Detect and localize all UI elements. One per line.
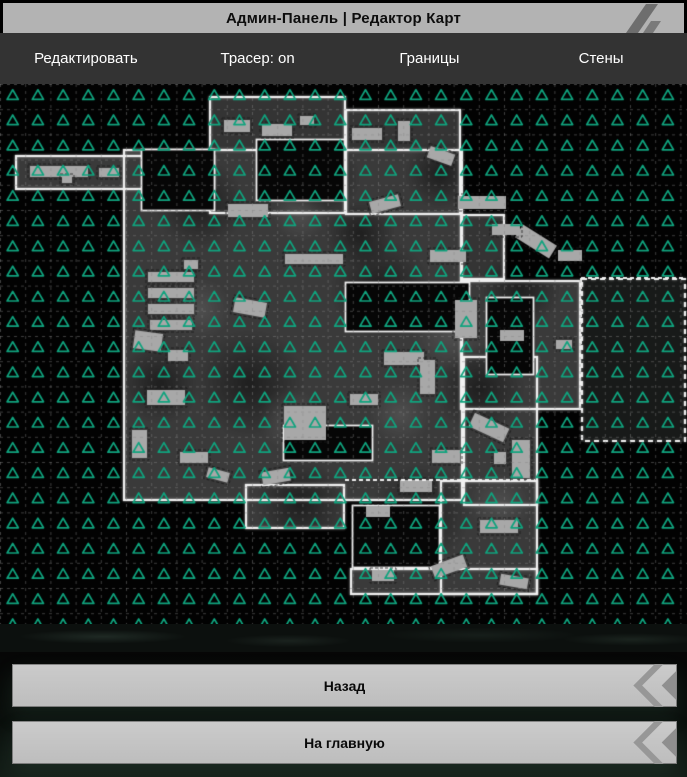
page-title: Админ-Панель | Редактор Карт — [226, 10, 461, 27]
home-button[interactable]: На главную — [12, 721, 677, 764]
map-editor-viewport — [0, 84, 687, 624]
back-button-label: Назад — [324, 678, 366, 694]
toolbar-item-walls[interactable]: Стены — [515, 50, 687, 67]
admin-logo-icon — [588, 3, 678, 33]
title-bar: Админ-Панель | Редактор Карт — [3, 3, 684, 33]
divider-texture — [0, 624, 687, 652]
chevron-decoration-icon — [619, 664, 677, 707]
chevron-decoration-icon — [619, 721, 677, 764]
footer-panel: Назад На главную — [0, 652, 687, 777]
map-canvas[interactable] — [0, 84, 687, 624]
toolbar: Редактировать Трасер: on Границы Стены — [0, 33, 687, 84]
back-button[interactable]: Назад — [12, 664, 677, 707]
toolbar-item-edit[interactable]: Редактировать — [0, 50, 172, 67]
toolbar-item-tracer[interactable]: Трасер: on — [172, 50, 344, 67]
toolbar-item-borders[interactable]: Границы — [344, 50, 516, 67]
admin-panel-window: Админ-Панель | Редактор Карт Редактирова… — [0, 0, 687, 777]
home-button-label: На главную — [304, 735, 385, 751]
